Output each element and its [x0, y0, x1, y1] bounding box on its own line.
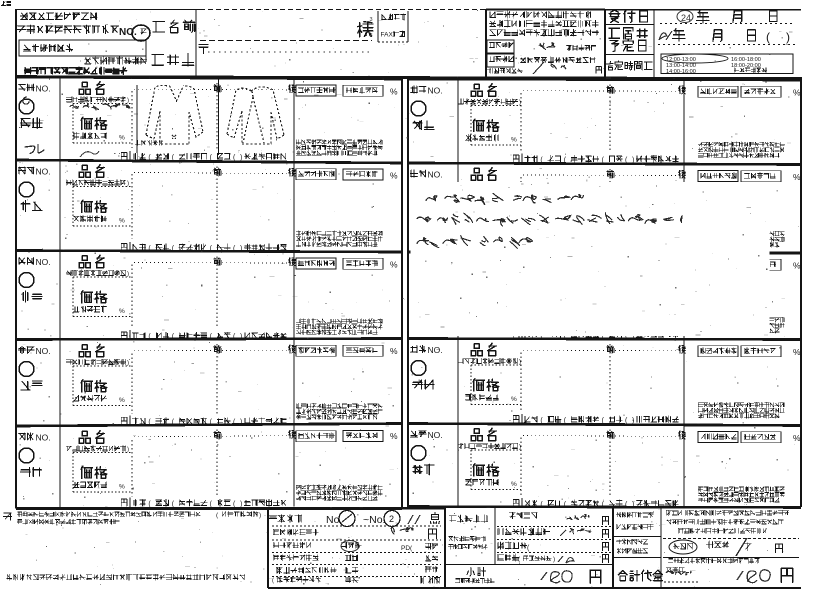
- svg-text:NO.: NO.: [428, 86, 443, 96]
- svg-text:%: %: [793, 433, 801, 443]
- svg-text:(: (: [766, 30, 770, 44]
- svg-text:(: (: [172, 501, 175, 508]
- svg-text:NO.: NO.: [36, 346, 51, 356]
- svg-text:(: (: [210, 501, 213, 508]
- svg-text:%: %: [390, 259, 398, 269]
- svg-text:14:00-16:00: 14:00-16:00: [666, 69, 696, 75]
- svg-text:FAX: FAX: [381, 32, 394, 39]
- svg-text:NO.: NO.: [36, 84, 51, 94]
- svg-text:(: (: [518, 556, 521, 563]
- svg-text:%: %: [793, 87, 801, 97]
- svg-text:NO.: NO.: [428, 430, 443, 440]
- svg-text:%: %: [119, 397, 125, 404]
- svg-text:): ): [519, 100, 521, 106]
- svg-text:): ): [127, 272, 129, 278]
- svg-text:3: 3: [370, 17, 373, 23]
- svg-text:(: (: [148, 501, 151, 508]
- svg-text:): ): [127, 181, 129, 187]
- svg-text:%: %: [511, 137, 517, 144]
- svg-text:%: %: [793, 347, 801, 357]
- svg-text:NO.: NO.: [36, 257, 51, 267]
- svg-text:%: %: [119, 135, 125, 142]
- svg-text:PD(: PD(: [401, 545, 413, 552]
- svg-text:NO.: NO.: [428, 170, 443, 180]
- svg-text:): ): [259, 512, 261, 519]
- svg-text:%: %: [119, 484, 125, 491]
- svg-text:2: 2: [389, 514, 394, 524]
- svg-text:(: (: [527, 545, 530, 552]
- svg-text:NO.: NO.: [36, 167, 51, 177]
- svg-text:%: %: [390, 170, 398, 180]
- svg-text:%: %: [119, 308, 125, 315]
- svg-text:3: 3: [370, 33, 373, 39]
- svg-text:%: %: [511, 396, 517, 403]
- svg-text:%: %: [390, 86, 398, 96]
- svg-text:24: 24: [681, 13, 691, 23]
- svg-text:): ): [127, 98, 129, 104]
- svg-text:NO.: NO.: [36, 433, 51, 443]
- svg-text:): ): [240, 501, 242, 508]
- svg-text:(: (: [233, 501, 236, 508]
- svg-text:%: %: [119, 218, 125, 225]
- svg-text:): ): [553, 556, 555, 563]
- svg-text:): ): [519, 360, 521, 366]
- svg-text:%: %: [390, 431, 398, 441]
- svg-text:%: %: [793, 172, 801, 182]
- svg-text:NO.: NO.: [428, 345, 443, 355]
- svg-text:(: (: [216, 512, 219, 519]
- svg-text:): ): [519, 445, 521, 451]
- svg-text:): ): [240, 154, 242, 161]
- svg-text:~No.: ~No.: [363, 514, 385, 526]
- svg-text:%: %: [793, 260, 801, 270]
- svg-text:): ): [127, 361, 129, 367]
- svg-text:): ): [127, 447, 129, 453]
